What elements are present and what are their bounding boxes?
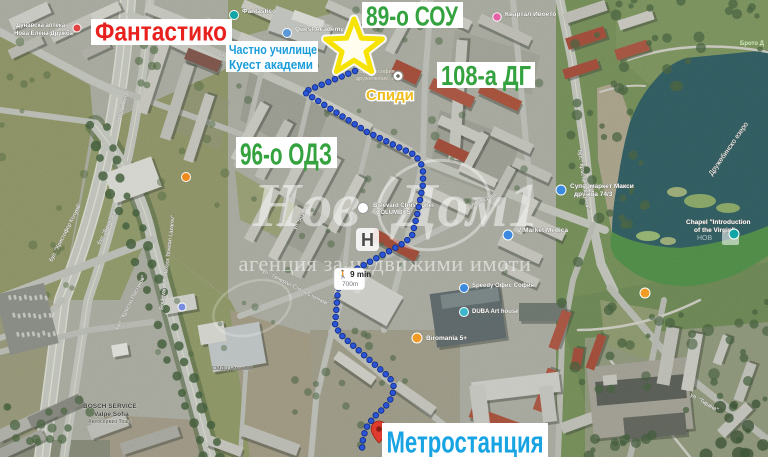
svg-text:Bulevard Christopher: Bulevard Christopher xyxy=(373,203,435,209)
svg-text:96-о ОДЗ: 96-о ОДЗ xyxy=(240,137,332,172)
svg-text:108-а ДГ: 108-а ДГ xyxy=(441,60,531,91)
svg-text:Куест академи: Куест академи xyxy=(229,57,313,72)
svg-text:COLUMBUS: COLUMBUS xyxy=(376,210,411,216)
svg-text:BOSCH SERVICE: BOSCH SERVICE xyxy=(83,403,137,410)
svg-text:Speedy Офис София: Speedy Офис София xyxy=(472,282,535,289)
svg-text:700m: 700m xyxy=(342,281,358,288)
svg-text:Супермаркет Макси: Супермаркет Макси xyxy=(570,183,634,190)
svg-text:Фантастико: Фантастико xyxy=(95,19,227,47)
svg-text:дружба 74/3: дружба 74/3 xyxy=(574,190,613,198)
svg-text:Biromania 5+: Biromania 5+ xyxy=(426,335,467,342)
svg-text:Chapel "Introduction: Chapel "Introduction xyxy=(686,219,750,226)
svg-text:V-Market Medica: V-Market Medica xyxy=(517,227,568,234)
svg-text:Метростанция: Метростанция xyxy=(387,425,544,457)
svg-text:🚶 9 min: 🚶 9 min xyxy=(338,269,371,279)
svg-text:СМДЦ Нмус ОЦ: СМДЦ Нмус ОЦ xyxy=(212,366,253,372)
svg-text:Фantastico: Фantastico xyxy=(242,8,276,15)
svg-text:DUBA Art house: DUBA Art house xyxy=(472,309,519,315)
svg-text:Дунавска аптека: Дунавска аптека xyxy=(16,23,66,29)
svg-text:H: H xyxy=(361,230,374,250)
svg-text:Спиди: Спиди xyxy=(366,87,414,104)
svg-text:Брото Д: Брото Д xyxy=(740,41,765,47)
svg-text:Автосервиз Тошо: Автосервиз Тошо xyxy=(88,419,132,425)
svg-text:Valpe Sofia: Valpe Sofia xyxy=(94,411,129,418)
svg-text:Нова Елена Дружба: Нова Елена Дружба xyxy=(14,30,74,37)
svg-text:89-о СОУ: 89-о СОУ xyxy=(366,1,459,32)
svg-text:НОВ: НОВ xyxy=(697,235,713,242)
svg-text:Квартал Ивоето: Квартал Ивоето xyxy=(505,11,556,18)
svg-text:Частно училище: Частно училище xyxy=(229,42,317,57)
svg-text:Quest Academy: Quest Academy xyxy=(295,26,344,33)
